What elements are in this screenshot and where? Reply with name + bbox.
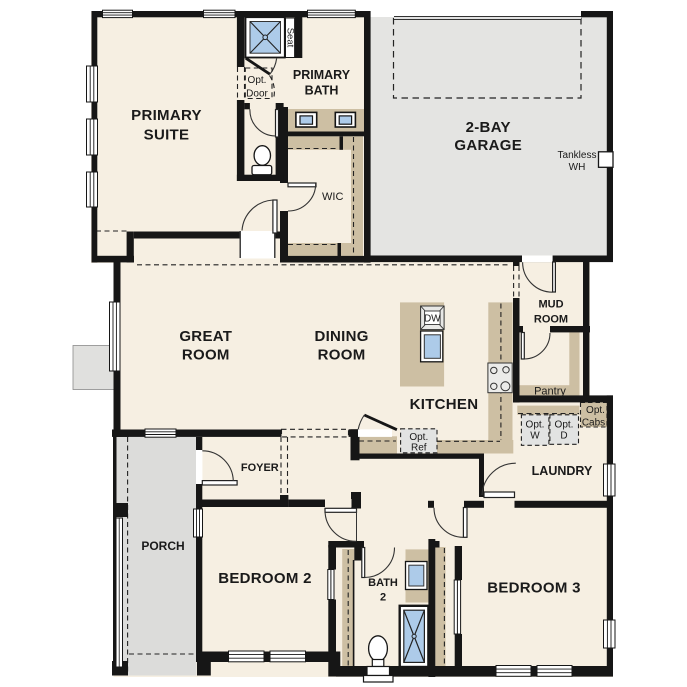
svg-text:BEDROOM 2: BEDROOM 2: [218, 570, 312, 587]
svg-text:ROOM: ROOM: [534, 313, 568, 325]
svg-text:PRIMARY: PRIMARY: [131, 107, 202, 124]
svg-text:Opt.: Opt.: [409, 432, 428, 443]
svg-text:W: W: [530, 431, 540, 442]
svg-text:GREAT: GREAT: [179, 328, 232, 345]
svg-text:FOYER: FOYER: [241, 462, 279, 474]
svg-text:2-BAY: 2-BAY: [466, 119, 511, 136]
svg-text:D: D: [560, 431, 567, 442]
svg-text:ROOM: ROOM: [182, 347, 230, 364]
svg-text:2: 2: [380, 592, 386, 604]
svg-text:ROOM: ROOM: [318, 347, 366, 364]
svg-text:Tankless: Tankless: [558, 150, 597, 161]
svg-text:Seat: Seat: [285, 28, 296, 48]
svg-text:Opt.: Opt.: [526, 420, 545, 431]
svg-text:Opt.: Opt.: [555, 420, 574, 431]
svg-text:DINING: DINING: [314, 328, 368, 345]
svg-text:PRIMARY: PRIMARY: [293, 68, 351, 82]
svg-text:Cabs: Cabs: [582, 418, 605, 429]
svg-text:BEDROOM 3: BEDROOM 3: [487, 580, 581, 597]
svg-text:DW: DW: [424, 314, 441, 325]
svg-text:WH: WH: [569, 162, 586, 173]
svg-text:Ref: Ref: [411, 443, 427, 454]
svg-text:Opt.: Opt.: [248, 75, 267, 86]
svg-text:BATH: BATH: [368, 577, 398, 589]
svg-text:Opt.: Opt.: [586, 405, 605, 416]
svg-text:MUD: MUD: [538, 299, 563, 311]
svg-text:Door: Door: [246, 89, 268, 100]
svg-text:LAUNDRY: LAUNDRY: [532, 464, 593, 478]
svg-text:BATH: BATH: [305, 84, 339, 98]
svg-text:Pantry: Pantry: [534, 386, 566, 398]
svg-text:KITCHEN: KITCHEN: [410, 396, 479, 413]
svg-text:PORCH: PORCH: [141, 539, 184, 553]
svg-text:WIC: WIC: [322, 191, 343, 203]
svg-text:GARAGE: GARAGE: [454, 137, 522, 154]
svg-text:SUITE: SUITE: [144, 126, 190, 143]
